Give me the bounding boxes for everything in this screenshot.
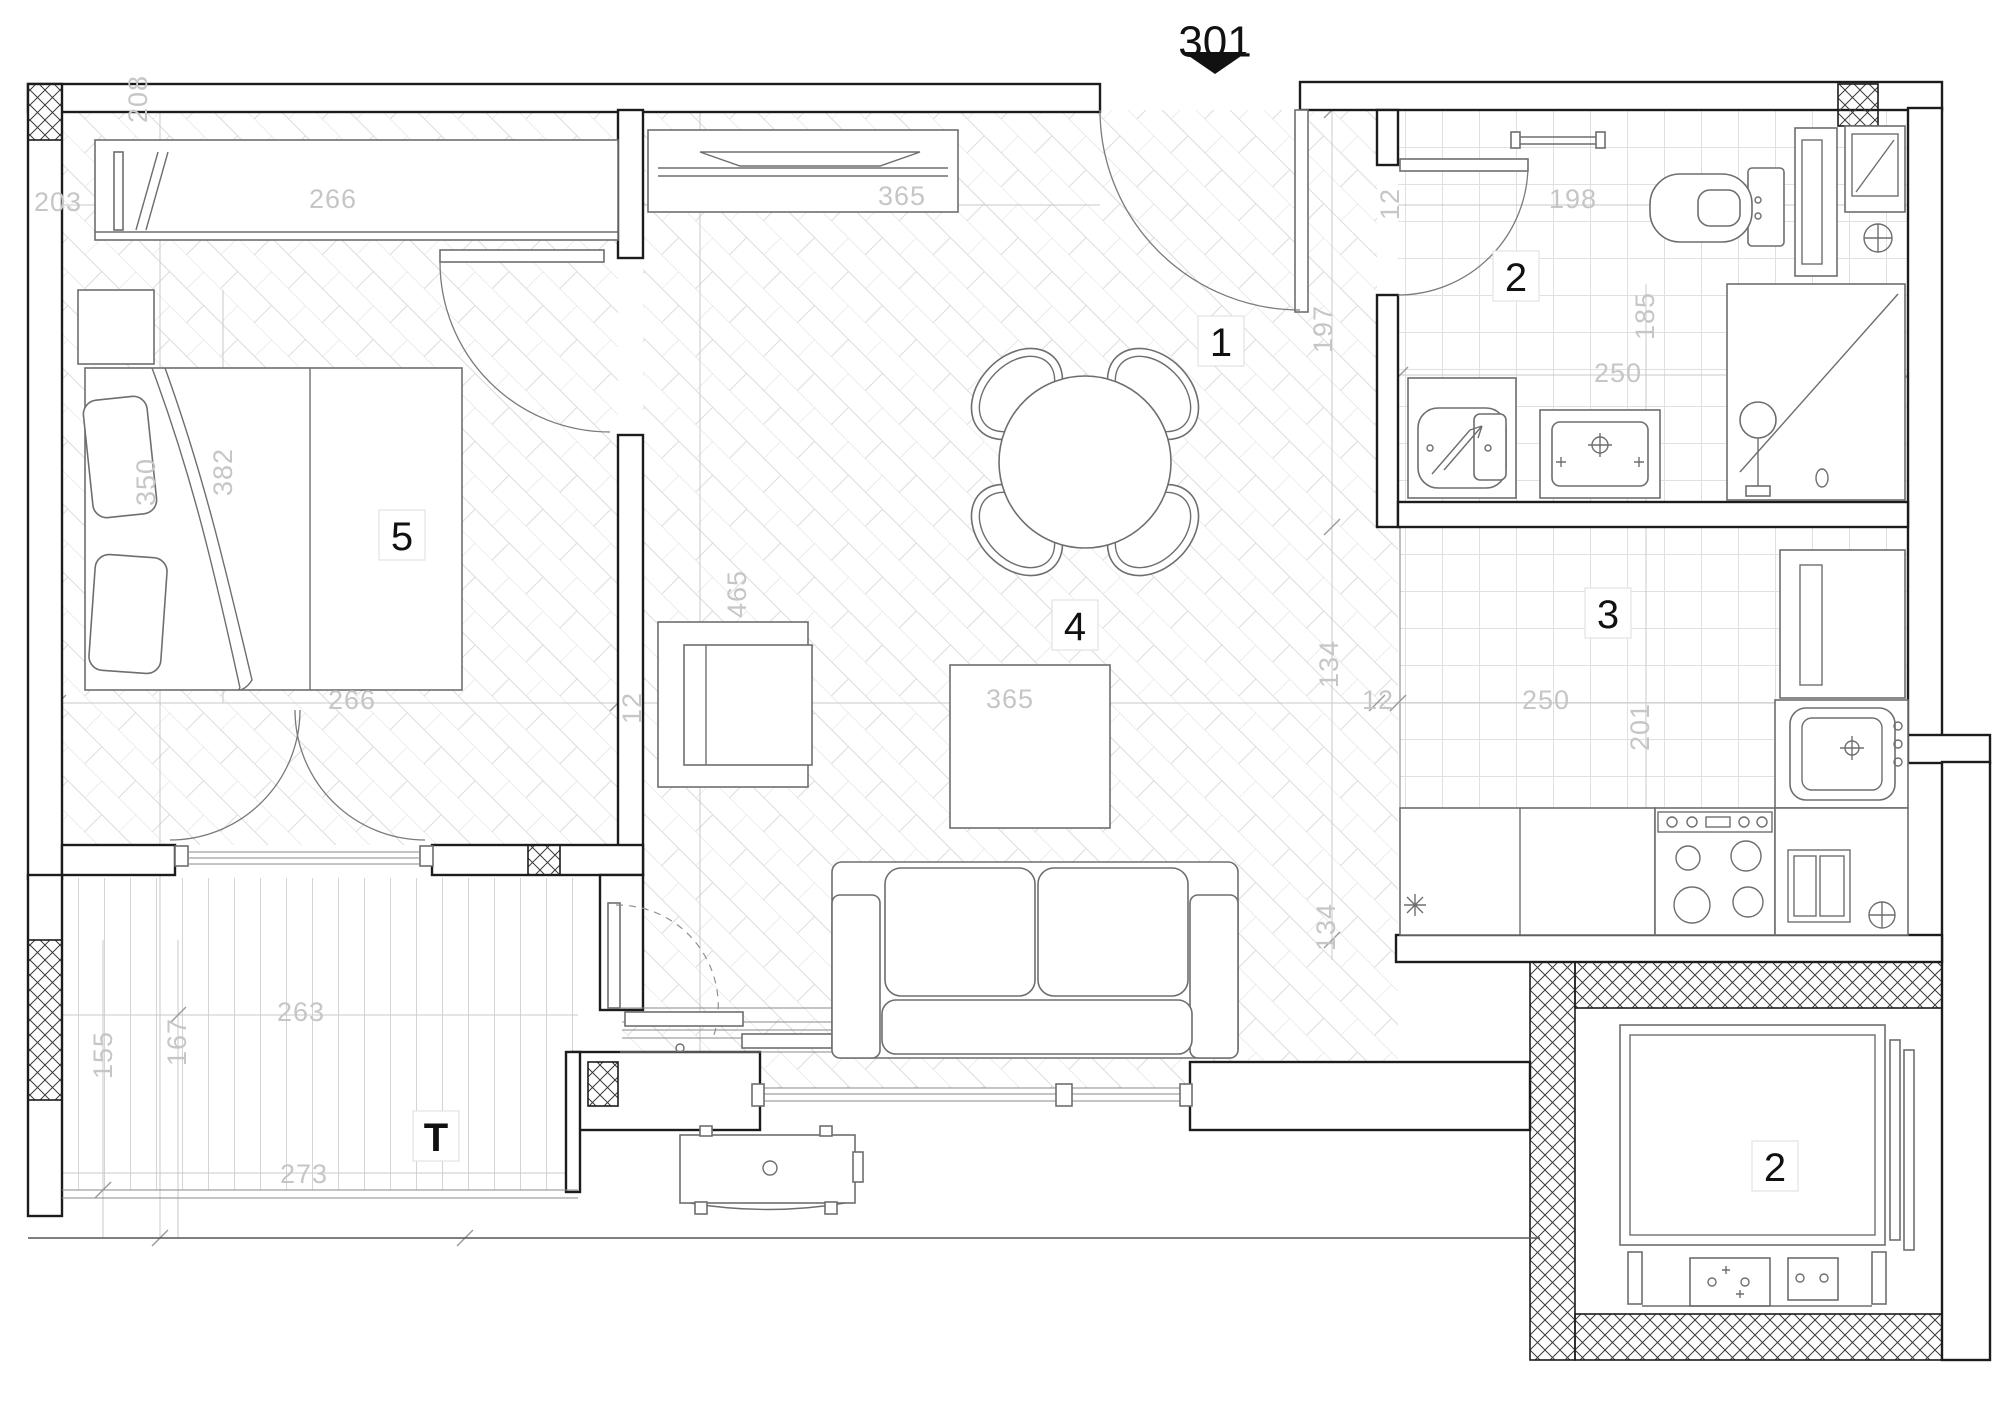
terrace-floor <box>62 878 575 1190</box>
top-wall-left <box>28 84 1100 112</box>
bath-wall-lower <box>1377 295 1398 527</box>
dimension-label: 208 <box>123 75 153 123</box>
bedroom-wall-upper <box>618 110 643 258</box>
right-wall-lower <box>1942 762 1990 1360</box>
floor-plan-page: 301 1 2 3 4 5 T 2 <box>0 0 2000 1401</box>
dimension-label: 266 <box>309 184 357 214</box>
armchair <box>658 622 812 787</box>
dimension-label: 185 <box>1630 292 1660 340</box>
dimension-label: 167 <box>162 1018 192 1066</box>
facade-pier-right <box>1190 1062 1530 1130</box>
elevator-car <box>1620 1025 1885 1245</box>
dimension-label: 350 <box>131 458 161 506</box>
toilet-cistern <box>1748 168 1784 246</box>
gas-point-symbol <box>1404 894 1426 916</box>
dimension-label: 198 <box>1549 184 1597 214</box>
dimension-label: 134 <box>1311 903 1341 951</box>
svg-text:2: 2 <box>1505 256 1527 300</box>
sofa-armrest <box>832 895 880 1058</box>
sofa-armrest <box>1190 895 1238 1058</box>
dimension-label: 263 <box>277 997 325 1027</box>
dimension-label: 273 <box>280 1159 328 1189</box>
elevator-wall-bottom <box>1575 1314 1942 1360</box>
nightstand <box>78 290 154 364</box>
washing-machine <box>1408 378 1516 498</box>
dimension-label: 250 <box>1594 358 1642 388</box>
room-label-living: 4 <box>1052 600 1098 650</box>
dishwasher <box>1775 808 1908 935</box>
room-label-elevator: 2 <box>1752 1141 1798 1191</box>
shower <box>1727 284 1905 500</box>
dimension-label: 201 <box>1625 703 1655 751</box>
kitchen-counter <box>1400 808 1655 935</box>
toilet <box>1650 168 1784 246</box>
mirror-cabinet <box>1795 128 1837 276</box>
bedroom-wall-lower <box>618 435 643 875</box>
elevator-wall-top <box>1575 962 1942 1008</box>
svg-text:5: 5 <box>391 515 413 559</box>
dimension-label: 197 <box>1308 305 1338 353</box>
dimension-label: 250 <box>1522 685 1570 715</box>
ac-outdoor-unit <box>680 1126 863 1214</box>
room-label-terrace: T <box>413 1111 459 1161</box>
dimension-label: 465 <box>722 570 752 618</box>
elevator-wall-left <box>1530 962 1575 1360</box>
right-wall-upper <box>1908 108 1942 740</box>
pillow <box>88 554 168 675</box>
kitchen-bottom-wall <box>1396 935 1942 962</box>
floor-plan-drawing: 301 1 2 3 4 5 T 2 <box>0 0 2000 1401</box>
dimension-label: 12 <box>1375 188 1405 220</box>
shower-head <box>1740 402 1776 438</box>
dimension-label: 365 <box>878 181 926 211</box>
dimension-label: 266 <box>328 685 376 715</box>
dimension-label: 12 <box>1362 685 1394 715</box>
room-label-kitchen: 3 <box>1585 588 1631 638</box>
stove <box>1655 808 1775 935</box>
dimension-label: 155 <box>88 1031 118 1079</box>
svg-text:T: T <box>424 1116 448 1160</box>
sofa-cushion <box>885 868 1035 996</box>
room-label-bathroom: 2 <box>1493 251 1539 301</box>
living-corner-wall <box>600 875 643 1010</box>
svg-text:4: 4 <box>1064 605 1086 649</box>
dimension-label: 134 <box>1314 640 1344 688</box>
dimension-label: 12 <box>617 692 647 724</box>
dimension-label: 365 <box>986 684 1034 714</box>
dining-table <box>999 376 1171 548</box>
bath-kitchen-wall <box>1398 502 1908 527</box>
dimension-label: 382 <box>208 448 238 496</box>
sofa-cushion <box>1038 868 1188 996</box>
svg-text:3: 3 <box>1597 593 1619 637</box>
kitchen-sink <box>1775 700 1908 808</box>
sofa-seat <box>882 1000 1192 1054</box>
dimension-label: 203 <box>34 187 82 217</box>
right-wall-step <box>1908 735 1990 763</box>
balcony-door-leaf <box>608 903 620 1008</box>
terrace-right-wall <box>566 1052 580 1192</box>
elevator-machinery <box>1628 1252 1886 1306</box>
svg-text:2: 2 <box>1764 1146 1786 1190</box>
room-label-hallway: 1 <box>1198 316 1244 366</box>
room-label-bedroom: 5 <box>379 510 425 560</box>
svg-text:1: 1 <box>1210 321 1232 365</box>
sofa <box>832 862 1238 1058</box>
bath-wall-upper <box>1377 110 1398 165</box>
fridge <box>1780 550 1905 698</box>
bedroom-bottom-wall-left <box>62 845 175 875</box>
vanity-sink <box>1540 410 1660 498</box>
apartment-marker: 301 <box>1178 18 1251 75</box>
